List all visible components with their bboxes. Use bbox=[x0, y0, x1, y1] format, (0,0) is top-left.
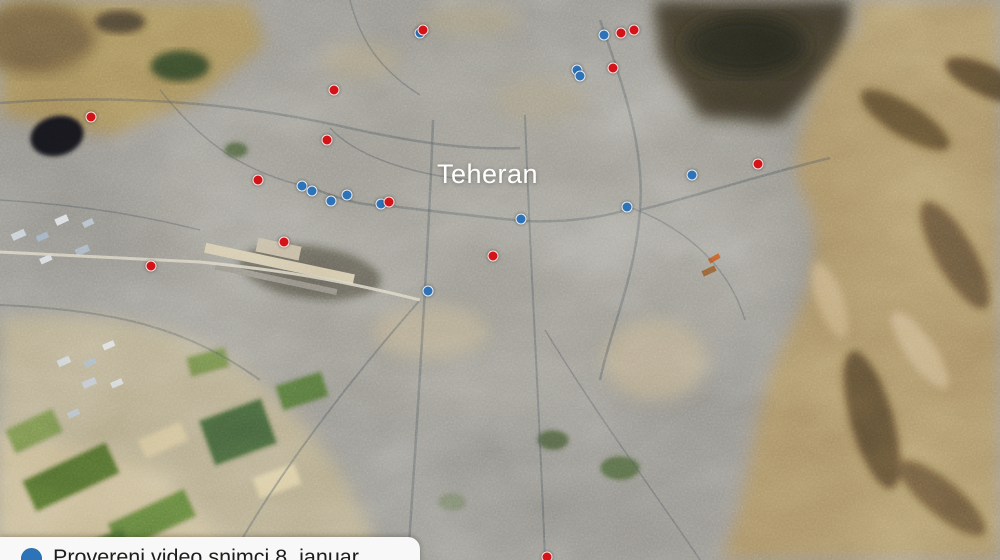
legend-label: Provereni video snimci 8. januar bbox=[53, 547, 359, 560]
legend-item-verified-videos: Provereni video snimci 8. januar bbox=[0, 537, 420, 560]
map-marker-red bbox=[542, 552, 553, 560]
map-marker-red bbox=[146, 261, 157, 272]
map-marker-red bbox=[608, 63, 619, 74]
map-marker-red bbox=[329, 85, 340, 96]
map-marker-blue bbox=[599, 30, 610, 41]
map-marker-blue bbox=[687, 170, 698, 181]
map-marker-blue bbox=[326, 196, 337, 207]
map-marker-blue bbox=[342, 190, 353, 201]
map-marker-red bbox=[616, 28, 627, 39]
map-marker-blue bbox=[516, 214, 527, 225]
map-marker-blue bbox=[307, 186, 318, 197]
map-marker-blue bbox=[622, 202, 633, 213]
map-marker-red bbox=[753, 159, 764, 170]
map-marker-red bbox=[488, 251, 499, 262]
legend-blue-dot-icon bbox=[21, 548, 42, 560]
map-marker-blue bbox=[575, 71, 586, 82]
map-marker-red bbox=[418, 25, 429, 36]
map-marker-red bbox=[629, 25, 640, 36]
map-marker-red bbox=[384, 197, 395, 208]
map-marker-blue bbox=[423, 286, 434, 297]
map-marker-red bbox=[253, 175, 264, 186]
map-marker-red bbox=[86, 112, 97, 123]
map-canvas: Teheran Provereni video snimci 8. januar bbox=[0, 0, 1000, 560]
map-marker-red bbox=[322, 135, 333, 146]
markers-layer bbox=[0, 0, 1000, 560]
legend: Provereni video snimci 8. januar bbox=[0, 537, 420, 560]
map-marker-red bbox=[279, 237, 290, 248]
